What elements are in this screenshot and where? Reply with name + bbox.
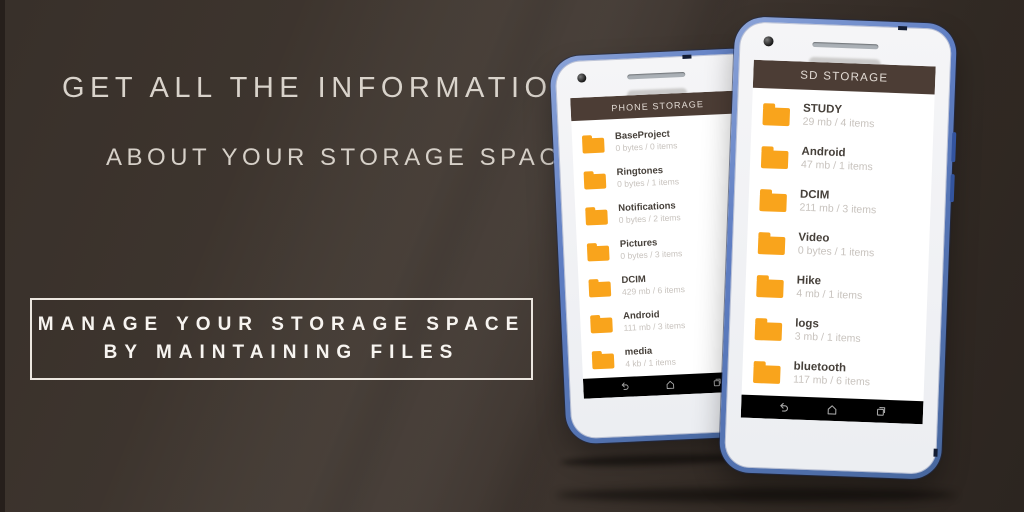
folder-row[interactable]: logs3 mb / 1 items xyxy=(743,307,926,357)
folder-meta: 47 mb / 1 items xyxy=(801,159,873,175)
folder-meta: 0 bytes / 3 items xyxy=(620,248,682,262)
frame-notch xyxy=(682,55,691,59)
folder-meta: 3 mb / 1 items xyxy=(794,330,860,345)
folder-icon xyxy=(584,173,607,189)
folder-icon xyxy=(755,322,783,341)
folder-meta: 0 bytes / 0 items xyxy=(615,140,677,154)
phone-mockup-sd-storage: SD STORAGE STUDY29 mb / 4 items Android4… xyxy=(719,16,958,480)
folder-meta: 111 mb / 3 items xyxy=(623,320,685,334)
phone-right-ground-shadow xyxy=(556,488,956,502)
hero-title: GET ALL THE INFORMATION xyxy=(62,72,579,105)
back-icon[interactable] xyxy=(618,381,631,394)
folder-meta: 4 mb / 1 items xyxy=(796,288,862,303)
speaker-slot xyxy=(812,42,878,49)
folder-meta: 0 bytes / 1 items xyxy=(798,245,875,261)
recents-icon[interactable] xyxy=(874,404,889,419)
folder-meta: 117 mb / 6 items xyxy=(793,373,870,389)
folder-icon xyxy=(761,150,789,169)
home-icon[interactable] xyxy=(825,402,840,417)
folder-row[interactable]: STUDY29 mb / 4 items xyxy=(751,92,934,142)
home-icon[interactable] xyxy=(664,379,677,392)
hero-subtitle: ABOUT YOUR STORAGE SPACE xyxy=(106,144,582,172)
folder-row[interactable]: Hike4 mb / 1 items xyxy=(745,264,928,314)
frame-notch xyxy=(898,26,907,30)
folder-meta: 0 bytes / 1 items xyxy=(617,176,679,190)
camera-dot xyxy=(577,73,586,82)
folder-meta: 0 bytes / 2 items xyxy=(619,212,681,226)
slogan-box: MANAGE YOUR STORAGE SPACE BY MAINTAINING… xyxy=(30,298,533,380)
back-icon[interactable] xyxy=(776,400,791,415)
folder-icon xyxy=(759,193,787,212)
folder-icon xyxy=(756,279,784,298)
power-button xyxy=(951,132,956,162)
slogan-line-2: BY MAINTAINING FILES xyxy=(104,342,460,364)
folder-icon xyxy=(589,281,612,297)
folder-icon xyxy=(758,236,786,255)
speaker-slot xyxy=(627,72,685,80)
folder-meta: 4 kb / 1 items xyxy=(625,356,676,369)
appbar-title: PHONE STORAGE xyxy=(611,99,704,113)
camera-dot xyxy=(763,36,773,46)
folder-row[interactable]: DCIM211 mb / 3 items xyxy=(748,178,931,228)
folder-icon xyxy=(592,353,615,369)
slogan-line-1: MANAGE YOUR STORAGE SPACE xyxy=(38,314,526,336)
left-edge-shade xyxy=(0,0,5,512)
folder-list: STUDY29 mb / 4 items Android47 mb / 1 it… xyxy=(742,88,935,399)
folder-icon xyxy=(762,107,790,126)
folder-icon xyxy=(753,365,781,384)
folder-row[interactable]: Video0 bytes / 1 items xyxy=(746,221,929,271)
folder-icon xyxy=(582,137,605,153)
phone-bezel: SD STORAGE STUDY29 mb / 4 items Android4… xyxy=(724,21,952,474)
promo-canvas: GET ALL THE INFORMATION ABOUT YOUR STORA… xyxy=(0,0,1024,512)
sd-storage-screen: SD STORAGE STUDY29 mb / 4 items Android4… xyxy=(741,60,936,424)
folder-row[interactable]: Android47 mb / 1 items xyxy=(750,135,933,185)
phone-left-ground-shadow xyxy=(560,453,745,468)
folder-meta: 29 mb / 4 items xyxy=(802,116,874,132)
folder-icon xyxy=(590,317,613,333)
folder-meta: 211 mb / 3 items xyxy=(799,202,876,218)
frame-notch xyxy=(933,449,937,457)
appbar-title: SD STORAGE xyxy=(800,70,889,85)
android-navbar xyxy=(741,395,924,425)
folder-meta: 429 mb / 6 items xyxy=(622,284,685,298)
folder-row[interactable]: bluetooth117 mb / 6 items xyxy=(742,350,925,400)
volume-button xyxy=(950,174,955,202)
folder-icon xyxy=(585,209,608,225)
folder-icon xyxy=(587,245,610,261)
